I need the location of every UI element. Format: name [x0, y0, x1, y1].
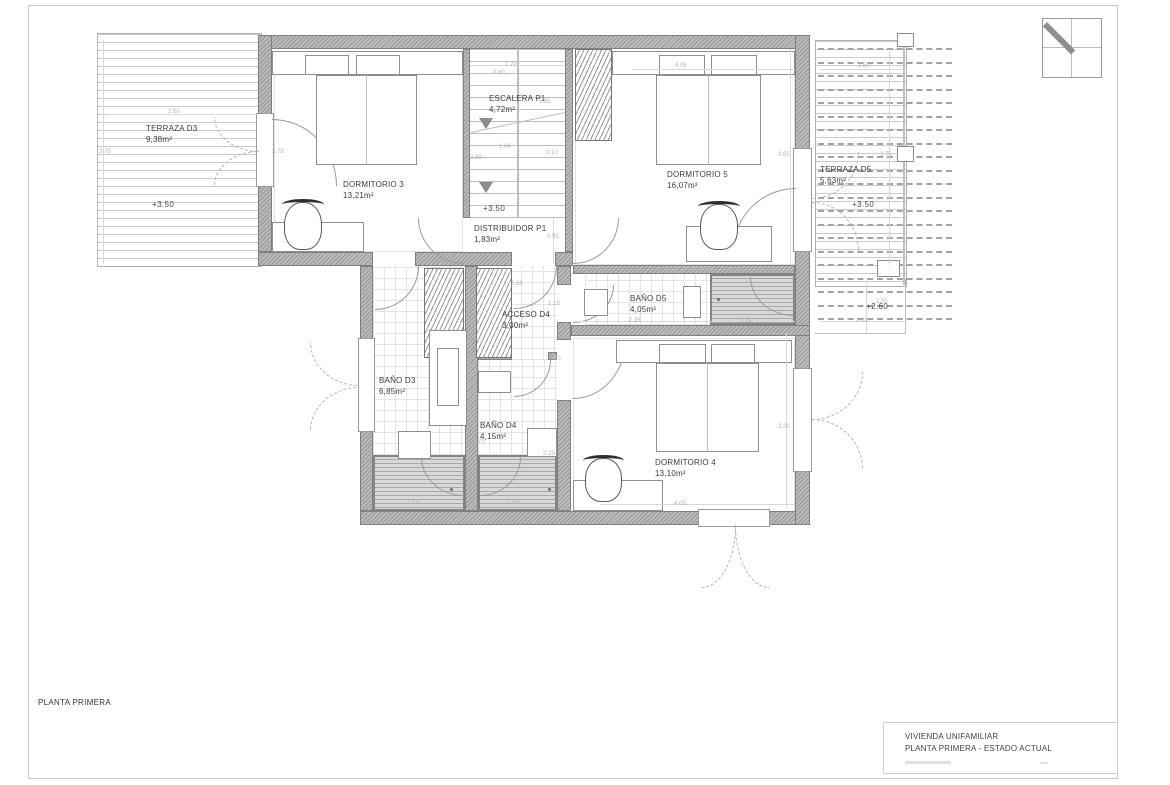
pergola-dashed-line	[818, 143, 952, 145]
wall-segment	[795, 35, 810, 150]
dimension-label: 1.68	[511, 281, 523, 287]
room-name: BAÑO D4	[480, 421, 517, 432]
wall-segment	[557, 400, 571, 511]
dimension-label: 1.84	[499, 144, 511, 150]
bed-centerline	[708, 75, 709, 165]
pergola-dashed-line	[818, 251, 952, 253]
terrace-decking-d5	[815, 40, 907, 287]
chair	[585, 458, 622, 502]
floor-plan: TERRAZA D39,38m²DORMITORIO 313,21m²ESCAL…	[0, 0, 1170, 785]
pillow	[659, 344, 706, 363]
dimension-label: 1.00	[876, 299, 888, 305]
pergola-dashed-line	[818, 291, 952, 293]
door-swing-arc	[735, 525, 769, 588]
room-name: DORMITORIO 5	[667, 170, 728, 181]
pergola-dashed-line	[818, 237, 952, 239]
shower-door-handle	[548, 488, 551, 491]
room-label-dormitorio-5: DORMITORIO 516,07m²	[667, 170, 728, 192]
dimension-label: 0.30	[539, 99, 551, 105]
wall-segment	[463, 49, 470, 218]
wall-segment	[795, 470, 810, 525]
chair	[700, 204, 738, 250]
staircase-stringer	[517, 49, 519, 218]
pergola-dashed-line	[818, 210, 952, 212]
wall-segment	[360, 430, 373, 511]
level-annotation: +3.50	[483, 205, 505, 213]
room-area: 6,85m²	[379, 387, 416, 398]
shower-door-handle	[717, 298, 720, 301]
room-label-acceso-d4: ACCESO D43,00m²	[502, 310, 550, 332]
pergola-dashed-line	[818, 129, 952, 131]
room-label-distribuidor-p1: DISTRIBUIDOR P11,83m²	[474, 224, 546, 246]
dimension-label: 4.05	[674, 501, 686, 507]
pillow	[711, 344, 755, 363]
dimension-label: 1.70	[505, 62, 517, 68]
washbasin	[437, 348, 459, 406]
room-area: 9,38m²	[146, 135, 197, 146]
wall-segment	[258, 185, 272, 252]
dimension-label: 3.75	[880, 152, 892, 158]
room-label-escalera-p1: ESCALERA P14,72m²	[489, 94, 545, 116]
room-name: TERRAZA D3	[146, 124, 197, 135]
dimension-line	[786, 333, 787, 508]
dimension-label: 1.68	[507, 500, 519, 506]
wall-segment	[360, 266, 373, 340]
room-name: ACCESO D4	[502, 310, 550, 321]
staircase-direction-arrow	[479, 182, 493, 193]
shower-door-handle	[450, 488, 453, 491]
room-area: 4,15m²	[480, 432, 517, 443]
pergola-dashed-line	[818, 62, 952, 64]
title-block-fineprint	[905, 761, 951, 764]
wall-segment	[557, 322, 571, 340]
wall-segment	[571, 325, 810, 336]
window-frame	[358, 338, 375, 432]
dimension-line	[553, 218, 554, 264]
pergola-post	[897, 146, 914, 162]
room-name: DORMITORIO 3	[343, 180, 404, 191]
entry-door-frame	[698, 509, 770, 527]
dimension-label: 1.50	[858, 63, 870, 69]
washbasin	[478, 371, 511, 393]
wall-segment	[258, 252, 373, 266]
pillow	[305, 55, 349, 75]
dimension-line	[820, 69, 905, 70]
door-swing-arc	[812, 419, 863, 469]
title-block-project: VIVIENDA UNIFAMILIAR	[905, 731, 998, 743]
room-label-terraza-d3: TERRAZA D39,38m²	[146, 124, 197, 146]
room-name: BAÑO D5	[630, 294, 667, 305]
room-label-bano-d3: BAÑO D36,85m²	[379, 376, 416, 398]
pergola-dashed-line	[818, 318, 952, 320]
washbasin	[584, 289, 608, 316]
room-label-terraza-d5: TERRAZA D55,63m²	[820, 165, 871, 187]
door-swing-arc	[310, 342, 359, 386]
dimension-label: 1.15	[548, 301, 560, 307]
room-area: 3,00m²	[502, 321, 550, 332]
level-annotation: +3.50	[152, 201, 174, 209]
room-label-bano-d4: BAÑO D44,15m²	[480, 421, 517, 443]
room-area: 16,07m²	[667, 181, 728, 192]
dimension-label: 2.70	[473, 439, 485, 445]
dimension-label: 3.75	[272, 149, 284, 155]
dimension-line	[470, 65, 564, 66]
dimension-label: 2.50	[168, 109, 180, 115]
dimension-label: 0.90	[549, 356, 561, 362]
drawing-sheet: TERRAZA D39,38m²DORMITORIO 313,21m²ESCAL…	[0, 0, 1170, 785]
orientation-symbol	[1042, 18, 1102, 78]
room-label-dormitorio-4: DORMITORIO 413,10m²	[655, 458, 716, 480]
wall-segment	[795, 250, 810, 370]
room-name: DISTRIBUIDOR P1	[474, 224, 546, 235]
door-swing-arc	[310, 387, 359, 431]
title-block-fineprint	[1040, 762, 1048, 764]
dimension-label: 4.05	[675, 63, 687, 69]
wall-segment	[415, 252, 512, 266]
dimension-label: 2.35	[629, 318, 641, 324]
room-name: BAÑO D3	[379, 376, 416, 387]
dimension-label: 1.80	[856, 318, 868, 324]
dimension-label: 1.60	[741, 318, 753, 324]
sheet-footer-label: PLANTA PRIMERA	[38, 698, 111, 707]
shower	[373, 455, 465, 511]
pillow	[711, 55, 757, 75]
dimension-line	[790, 49, 791, 265]
pergola-dashed-line	[818, 48, 952, 50]
pillow	[356, 55, 400, 75]
dimension-line	[108, 114, 258, 115]
dimension-label: 0.10	[546, 150, 558, 156]
dimension-label: 1.88	[407, 500, 419, 506]
bed-centerline	[366, 75, 367, 165]
wall-segment	[258, 35, 272, 115]
room-label-bano-d5: BAÑO D54,05m²	[630, 294, 667, 316]
window-frame	[793, 368, 812, 472]
dimension-line	[577, 321, 795, 322]
dimension-label: 3.75	[99, 149, 111, 155]
bed-centerline	[707, 363, 708, 452]
dimension-line	[632, 69, 795, 70]
pergola-post	[897, 33, 914, 47]
room-area: 13,21m²	[343, 191, 404, 202]
title-block-sheet: PLANTA PRIMERA - ESTADO ACTUAL	[905, 743, 1052, 755]
wall-segment	[557, 266, 571, 285]
dimension-label: 2.25	[543, 451, 555, 457]
room-name: ESCALERA P1	[489, 94, 545, 105]
pergola-dashed-line	[818, 197, 952, 199]
chair	[284, 202, 322, 250]
room-area: 4,72m²	[489, 105, 545, 116]
terrace-edge-line	[815, 333, 906, 334]
dimension-label: 3.20	[778, 424, 790, 430]
wall-segment	[360, 511, 700, 525]
pergola-dashed-line	[818, 224, 952, 226]
dimension-label: 0.60	[493, 70, 505, 76]
wardrobe	[575, 49, 612, 141]
room-area: 1,83m²	[474, 235, 546, 246]
pergola-dashed-line	[818, 116, 952, 118]
room-area: 4,05m²	[630, 305, 667, 316]
room-area: 5,63m²	[820, 176, 871, 187]
toilet	[683, 286, 701, 318]
dimension-line	[600, 504, 795, 505]
room-name: DORMITORIO 4	[655, 458, 716, 469]
wall-segment	[555, 252, 573, 266]
room-area: 13,10m²	[655, 469, 716, 480]
terrace-door-frame	[793, 148, 812, 252]
terrace-edge-line	[905, 278, 906, 334]
dimension-label: 3.65	[778, 152, 790, 158]
room-name: TERRAZA D5	[820, 165, 871, 176]
pergola-dashed-line	[818, 278, 952, 280]
terrace-decking-d3	[97, 33, 262, 267]
wall-segment	[573, 265, 795, 274]
dimension-label: 3.85	[470, 155, 482, 161]
level-annotation: +3.50	[852, 201, 874, 209]
door-swing-arc	[702, 525, 736, 588]
door-swing-arc	[812, 372, 863, 420]
pergola-dashed-line	[818, 102, 952, 104]
pergola-dashed-line	[818, 89, 952, 91]
wall-segment	[565, 49, 573, 252]
dimension-label: 0.95	[547, 234, 559, 240]
wall-segment	[258, 35, 810, 49]
toilet	[398, 431, 431, 459]
room-label-dormitorio-3: DORMITORIO 313,21m²	[343, 180, 404, 202]
pergola-dashed-line	[818, 75, 952, 77]
